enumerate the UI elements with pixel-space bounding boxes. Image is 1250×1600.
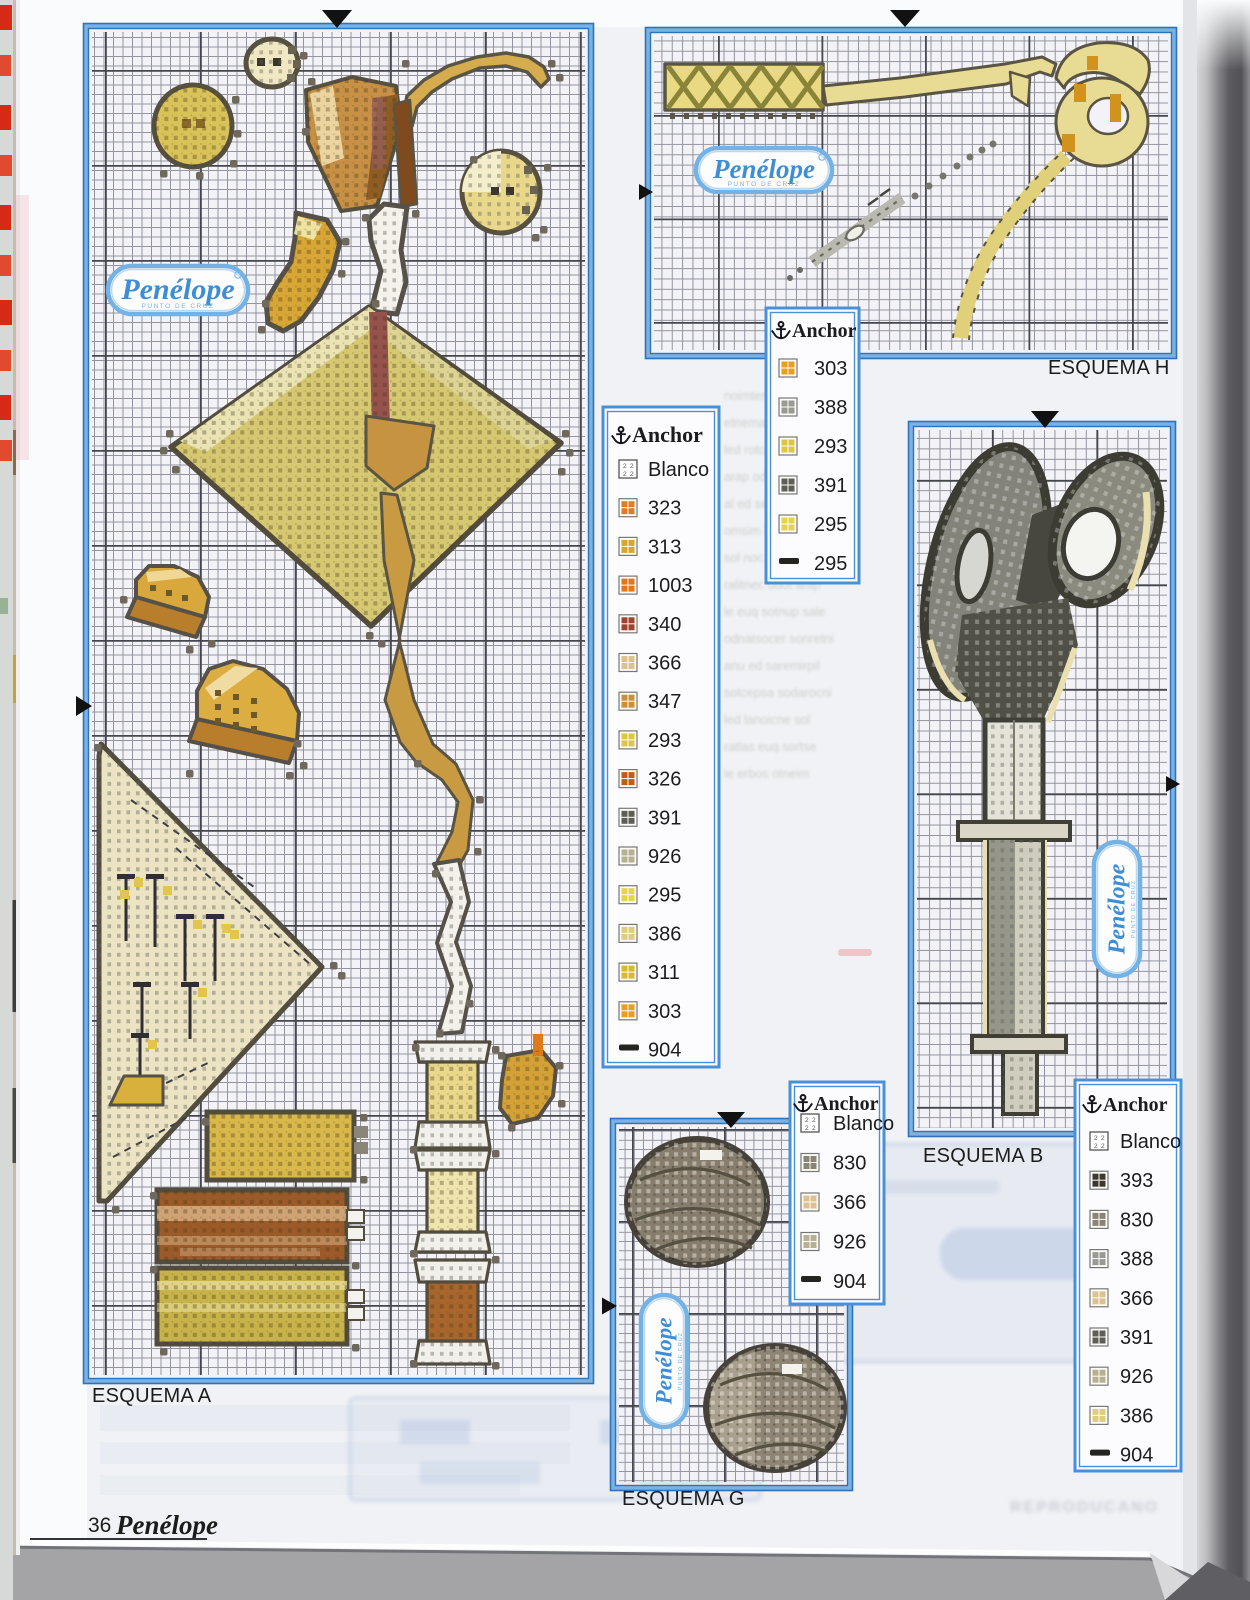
svg-text:Penélope: Penélope	[651, 1318, 676, 1406]
svg-text:Anchor: Anchor	[814, 1093, 879, 1115]
svg-text:anu ed saremirpil: anu ed saremirpil	[724, 659, 820, 673]
svg-text:PUNTO DE CRUZ: PUNTO DE CRUZ	[728, 181, 801, 188]
svg-text:PUNTO DE CRUZ: PUNTO DE CRUZ	[678, 1332, 684, 1390]
svg-text:ESQUEMA B: ESQUEMA B	[923, 1145, 1044, 1167]
svg-text:303: 303	[648, 1001, 681, 1023]
svg-text:2: 2	[1094, 1135, 1098, 1142]
svg-text:326: 326	[648, 769, 681, 791]
svg-text:295: 295	[814, 514, 847, 536]
svg-text:340: 340	[648, 614, 681, 636]
svg-text:2: 2	[812, 1117, 816, 1124]
svg-text:904: 904	[648, 1040, 681, 1062]
svg-text:391: 391	[814, 475, 847, 497]
svg-text:2: 2	[1101, 1143, 1105, 1150]
svg-text:Penélope: Penélope	[712, 154, 815, 184]
svg-text:926: 926	[648, 846, 681, 868]
svg-text:2: 2	[805, 1117, 809, 1124]
svg-text:347: 347	[648, 691, 681, 713]
svg-text:Penélope: Penélope	[1105, 863, 1131, 955]
svg-text:313: 313	[648, 536, 681, 558]
svg-text:Blanco: Blanco	[1120, 1131, 1181, 1153]
svg-text:2: 2	[805, 1125, 809, 1132]
svg-text:ESQUEMA A: ESQUEMA A	[92, 1385, 212, 1407]
svg-text:1003: 1003	[648, 575, 693, 597]
svg-text:Penélope: Penélope	[120, 273, 234, 306]
svg-text:830: 830	[833, 1153, 866, 1175]
svg-text:sotcepsa sodarocni: sotcepsa sodarocni	[724, 686, 832, 700]
svg-text:odnatsocer sonretni: odnatsocer sonretni	[724, 632, 834, 646]
svg-text:Blanco: Blanco	[648, 459, 709, 481]
svg-text:386: 386	[1120, 1405, 1153, 1427]
svg-text:926: 926	[833, 1232, 866, 1254]
svg-text:2: 2	[1094, 1143, 1098, 1150]
svg-text:REPRODUCANO: REPRODUCANO	[1010, 1499, 1159, 1516]
svg-text:2: 2	[630, 463, 634, 470]
svg-text:2: 2	[630, 471, 634, 478]
svg-text:303: 303	[814, 358, 847, 380]
svg-text:Anchor: Anchor	[1103, 1094, 1168, 1116]
svg-text:388: 388	[814, 397, 847, 419]
svg-text:366: 366	[1120, 1288, 1153, 1310]
svg-text:391: 391	[1120, 1327, 1153, 1349]
svg-text:391: 391	[648, 807, 681, 829]
svg-text:926: 926	[1120, 1366, 1153, 1388]
svg-text:393: 393	[1120, 1170, 1153, 1192]
svg-text:PUNTO DE CRUZ: PUNTO DE CRUZ	[142, 303, 215, 310]
svg-text:2: 2	[812, 1125, 816, 1132]
svg-text:386: 386	[648, 923, 681, 945]
svg-text:295: 295	[648, 885, 681, 907]
svg-text:36: 36	[88, 1514, 111, 1537]
svg-text:2: 2	[1101, 1135, 1105, 1142]
svg-text:366: 366	[833, 1192, 866, 1214]
svg-text:311: 311	[648, 962, 680, 984]
svg-text:904: 904	[833, 1271, 866, 1293]
svg-text:Penélope: Penélope	[115, 1510, 218, 1540]
svg-text:388: 388	[1120, 1249, 1153, 1271]
svg-text:2: 2	[623, 471, 627, 478]
svg-text:323: 323	[648, 498, 681, 520]
svg-text:ESQUEMA G: ESQUEMA G	[622, 1488, 745, 1510]
svg-text:le euq sotnup sale: le euq sotnup sale	[724, 605, 826, 619]
svg-text:Anchor: Anchor	[792, 320, 857, 342]
svg-text:ratlas euq sortse: ratlas euq sortse	[724, 740, 816, 754]
svg-text:2: 2	[623, 463, 627, 470]
svg-text:PUNTO DE CRUZ: PUNTO DE CRUZ	[1131, 880, 1137, 938]
svg-text:293: 293	[648, 730, 681, 752]
svg-text:le erbos otneim: le erbos otneim	[724, 767, 809, 781]
svg-text:904: 904	[1120, 1445, 1153, 1467]
svg-text:830: 830	[1120, 1209, 1153, 1231]
svg-text:Anchor: Anchor	[632, 422, 703, 447]
svg-text:Blanco: Blanco	[833, 1113, 894, 1135]
svg-text:293: 293	[814, 436, 847, 458]
svg-text:295: 295	[814, 553, 847, 575]
svg-text:led lanoicne sol: led lanoicne sol	[724, 713, 810, 727]
svg-text:366: 366	[648, 653, 681, 675]
svg-text:ESQUEMA H: ESQUEMA H	[1048, 357, 1170, 379]
